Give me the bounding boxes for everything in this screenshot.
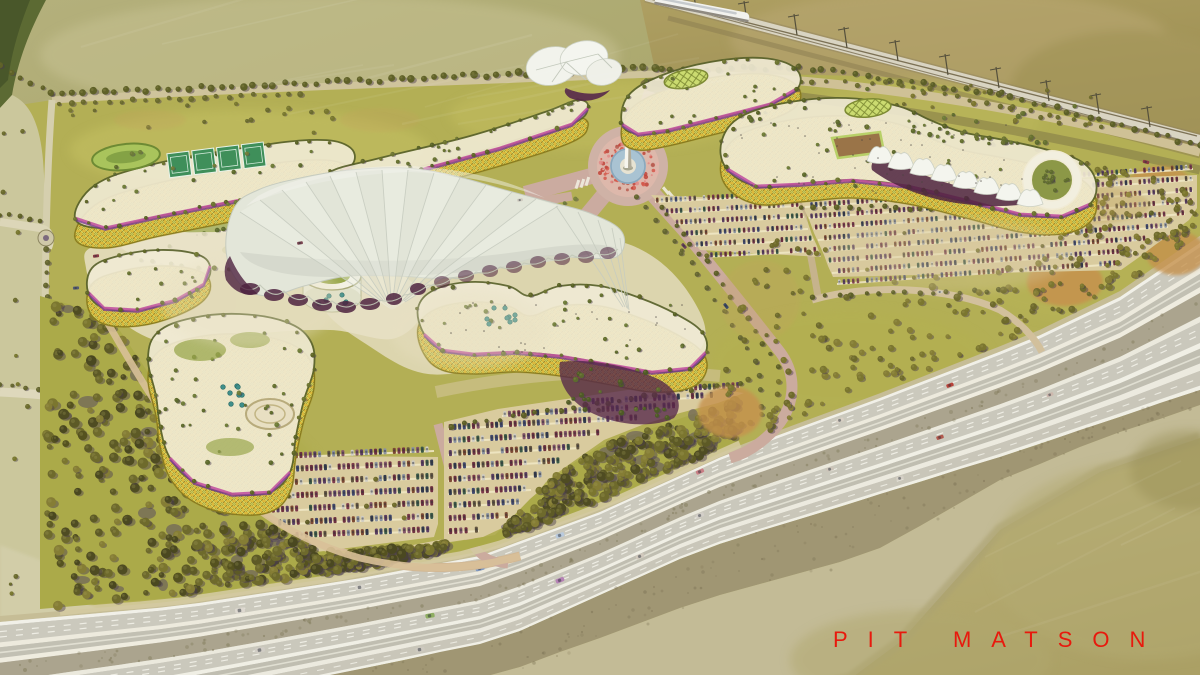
svg-text:PIT MATSON: PIT MATSON (833, 627, 1165, 652)
